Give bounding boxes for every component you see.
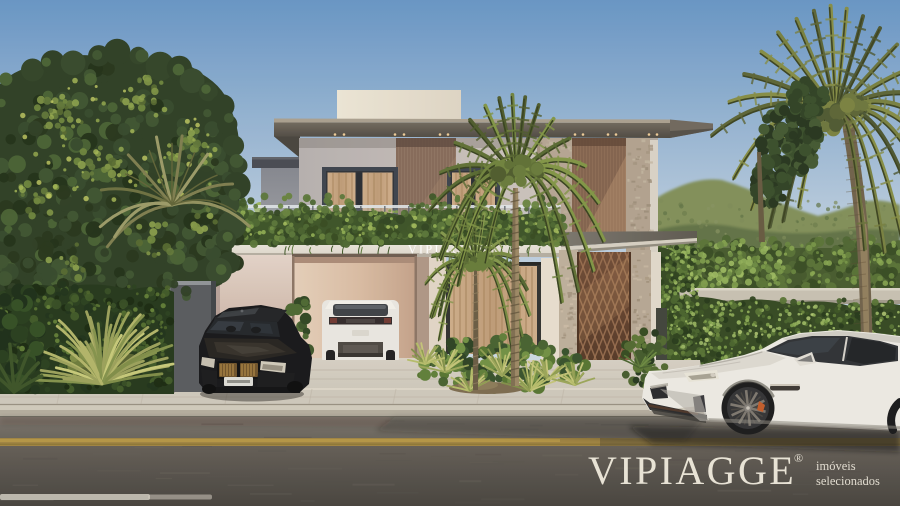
- svg-text:VIPIAGGE: VIPIAGGE: [588, 448, 796, 493]
- svg-text:selecionados: selecionados: [816, 474, 880, 488]
- svg-text:imóveis: imóveis: [816, 459, 856, 473]
- svg-text:®: ®: [794, 451, 803, 465]
